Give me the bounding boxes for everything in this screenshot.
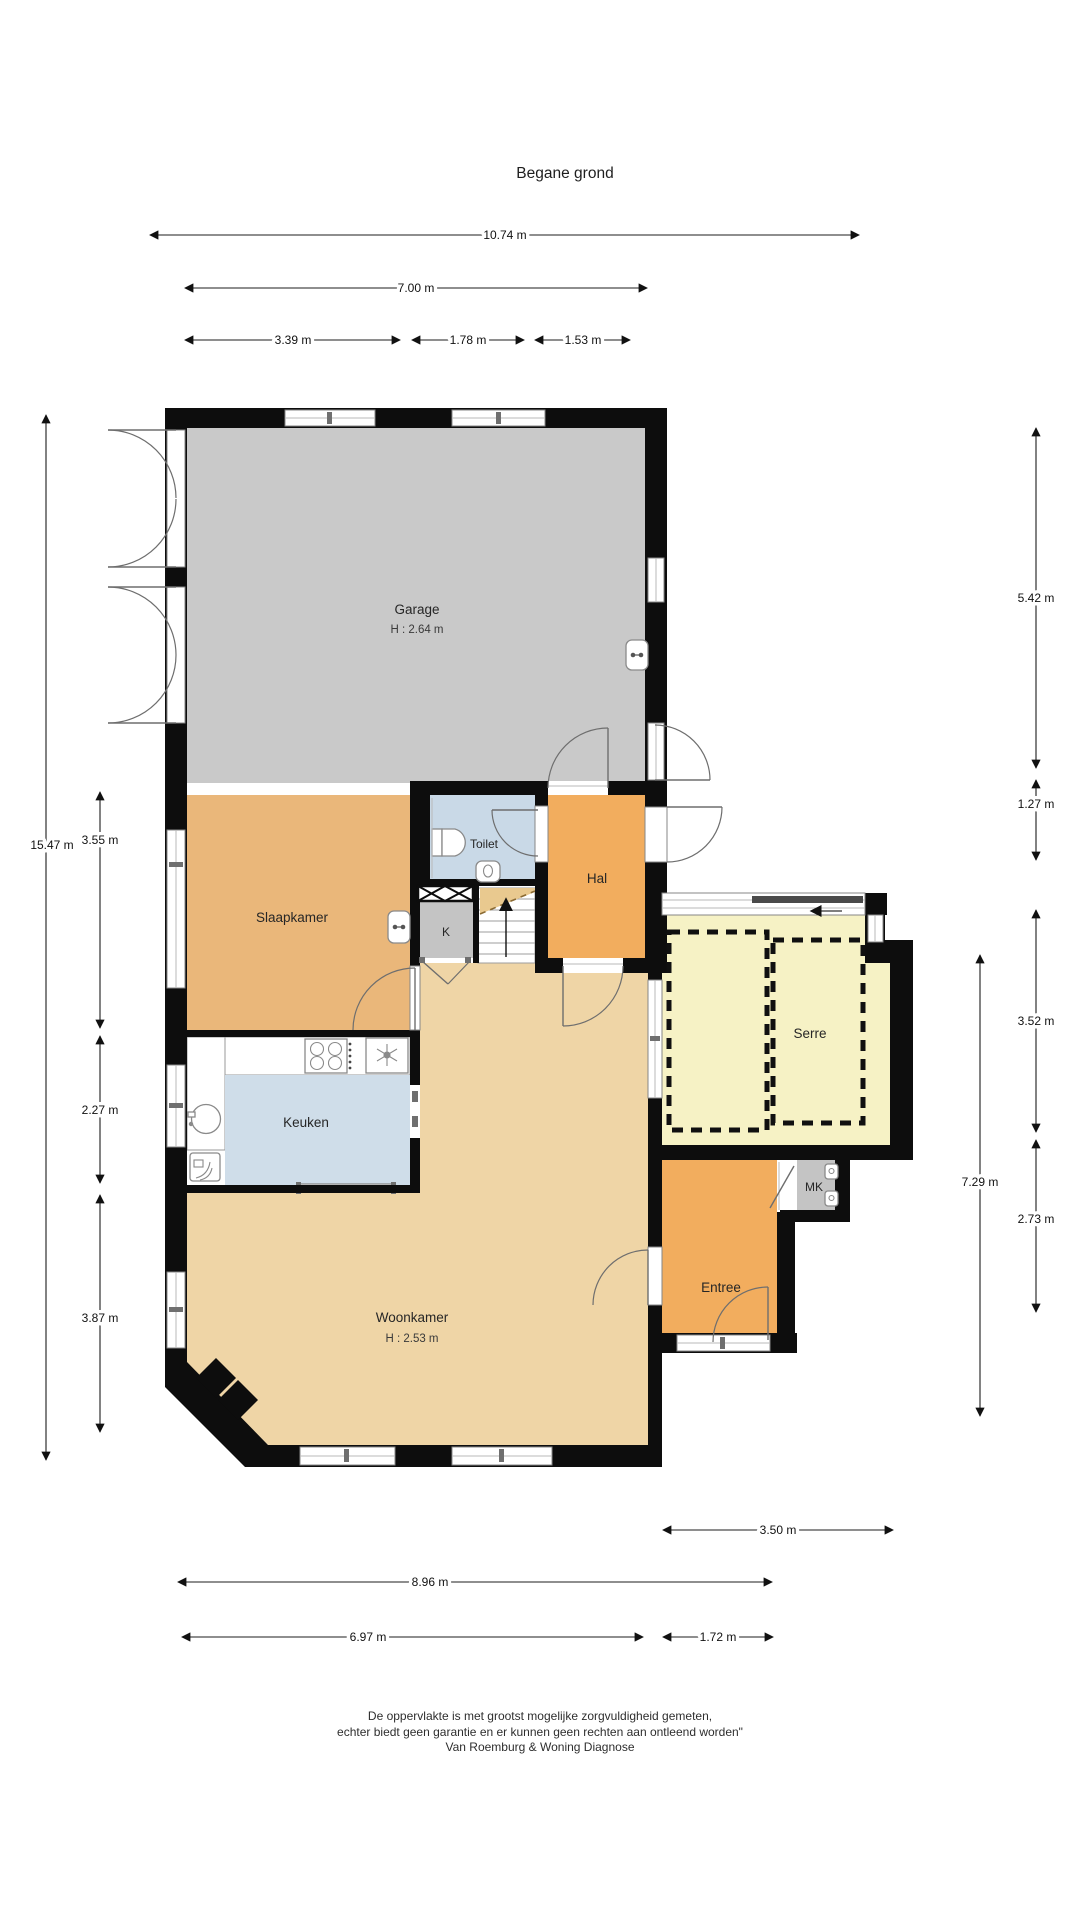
wall-serre-ne-corner	[865, 893, 887, 915]
dim-top-garage: 7.00 m	[185, 281, 647, 295]
svg-text:7.29 m: 7.29 m	[962, 1175, 999, 1189]
wall-keuken-south	[187, 1185, 420, 1193]
stove-icon	[305, 1039, 347, 1073]
wall-slaapkamer-south	[187, 1030, 420, 1037]
footer-line-1: De oppervlakte is met grootst mogelijke …	[368, 1709, 712, 1723]
keuken-label: Keuken	[283, 1115, 329, 1130]
slaapkamer-label: Slaapkamer	[256, 910, 329, 925]
window-woonkamer-serre	[648, 980, 662, 1098]
svg-text:15.47 m: 15.47 m	[30, 838, 73, 852]
dishwasher-icon	[190, 1153, 220, 1181]
svg-text:3.52 m: 3.52 m	[1018, 1014, 1055, 1028]
window-garage-east	[648, 558, 664, 602]
svg-text:3.87 m: 3.87 m	[82, 1311, 119, 1325]
meterkast-label: MK	[805, 1180, 823, 1194]
keuken-passage	[410, 1085, 420, 1138]
svg-text:3.39 m: 3.39 m	[275, 333, 312, 347]
footer-line-2: echter biedt geen garantie en er kunnen …	[337, 1725, 743, 1739]
dim-top-seg-2: 1.78 m	[412, 333, 524, 347]
svg-text:3.50 m: 3.50 m	[760, 1523, 797, 1537]
toilet-label: Toilet	[470, 837, 499, 851]
garage-door-opening-1	[167, 430, 185, 567]
kitchen-sink-icon	[192, 1105, 221, 1134]
dim-left-overall: 15.47 m	[30, 415, 73, 1460]
dim-top-overall: 10.74 m	[150, 228, 859, 242]
window-slaapkamer	[167, 830, 185, 988]
garage-back-door	[648, 723, 710, 780]
wall-serre-south	[648, 1145, 913, 1160]
window-serre-east	[868, 915, 883, 942]
footer-disclaimer: De oppervlakte is met grootst mogelijke …	[337, 1709, 743, 1754]
boiler-icon-garage	[626, 640, 648, 670]
svg-text:2.73 m: 2.73 m	[1018, 1212, 1055, 1226]
dim-left-slaapkamer: 3.55 m	[82, 792, 119, 1028]
svg-text:8.96 m: 8.96 m	[412, 1575, 449, 1589]
boiler-icon-slaapkamer	[388, 911, 410, 943]
svg-text:10.74 m: 10.74 m	[483, 228, 526, 242]
serre-label: Serre	[793, 1026, 826, 1041]
hal-label: Hal	[587, 871, 607, 886]
svg-text:3.55 m: 3.55 m	[82, 833, 119, 847]
front-door-hal	[645, 807, 722, 862]
serre-sliding-door	[662, 893, 865, 915]
svg-text:7.00 m: 7.00 m	[398, 281, 435, 295]
dim-top-seg-3: 1.53 m	[535, 333, 630, 347]
dim-bottom-woonkamer: 6.97 m	[182, 1630, 643, 1644]
entree-label: Entree	[701, 1280, 741, 1295]
dim-top-seg-1: 3.39 m	[185, 333, 400, 347]
wall-serre-east	[890, 950, 913, 1160]
window-top-2	[452, 410, 545, 426]
window-bottom-1	[300, 1447, 395, 1465]
wall-right-garage-hal	[645, 408, 667, 973]
svg-text:6.97 m: 6.97 m	[350, 1630, 387, 1644]
kast-label: K	[442, 925, 450, 939]
keuken-floor	[225, 1075, 410, 1185]
floor-plan-drawing: Garage H : 2.64 m Slaapkamer Toilet K Ha…	[0, 0, 1080, 1920]
window-woonkamer-west	[167, 1272, 185, 1348]
dim-right-hal: 1.27 m	[1018, 780, 1055, 860]
svg-text:2.27 m: 2.27 m	[82, 1103, 119, 1117]
dim-bottom-entree: 1.72 m	[663, 1630, 773, 1644]
dim-bottom-serre: 3.50 m	[663, 1523, 893, 1537]
entree-floor	[662, 1160, 777, 1333]
wall-garage-south	[410, 781, 667, 795]
window-top-1	[285, 410, 375, 426]
dim-right-serre: 3.52 m	[1018, 910, 1055, 1132]
staircase	[478, 888, 535, 963]
serre-floor	[662, 915, 890, 1145]
duct-shaft-icon	[418, 886, 473, 901]
dim-bottom-overall: 8.96 m	[178, 1575, 772, 1589]
floor-plan-page: Garage H : 2.64 m Slaapkamer Toilet K Ha…	[0, 0, 1080, 1920]
dim-right-garage: 5.42 m	[1018, 428, 1055, 768]
svg-text:1.72 m: 1.72 m	[700, 1630, 737, 1644]
garage-height-label: H : 2.64 m	[390, 624, 443, 636]
svg-text:1.53 m: 1.53 m	[565, 333, 602, 347]
dim-left-woonkamer: 3.87 m	[82, 1195, 119, 1432]
svg-text:5.42 m: 5.42 m	[1018, 591, 1055, 605]
toilet-basin-icon	[476, 861, 500, 882]
dim-left-keuken: 2.27 m	[82, 1036, 119, 1183]
garage-label: Garage	[394, 602, 439, 617]
window-keuken	[167, 1065, 185, 1147]
svg-text:1.78 m: 1.78 m	[450, 333, 487, 347]
wall-top	[165, 408, 667, 428]
woonkamer-height-label: H : 2.53 m	[385, 1333, 438, 1345]
svg-text:1.27 m: 1.27 m	[1018, 797, 1055, 811]
page-title: Begane grond	[516, 165, 613, 182]
sink-tap-icon	[188, 1112, 195, 1117]
footer-line-3: Van Roemburg & Woning Diagnose	[446, 1740, 635, 1754]
window-bottom-2	[452, 1447, 552, 1465]
woonkamer-label: Woonkamer	[376, 1310, 449, 1325]
dim-right-overall: 7.29 m	[962, 955, 999, 1416]
dim-right-entree: 2.73 m	[1018, 1140, 1055, 1312]
wall-entree-east	[777, 1212, 795, 1353]
